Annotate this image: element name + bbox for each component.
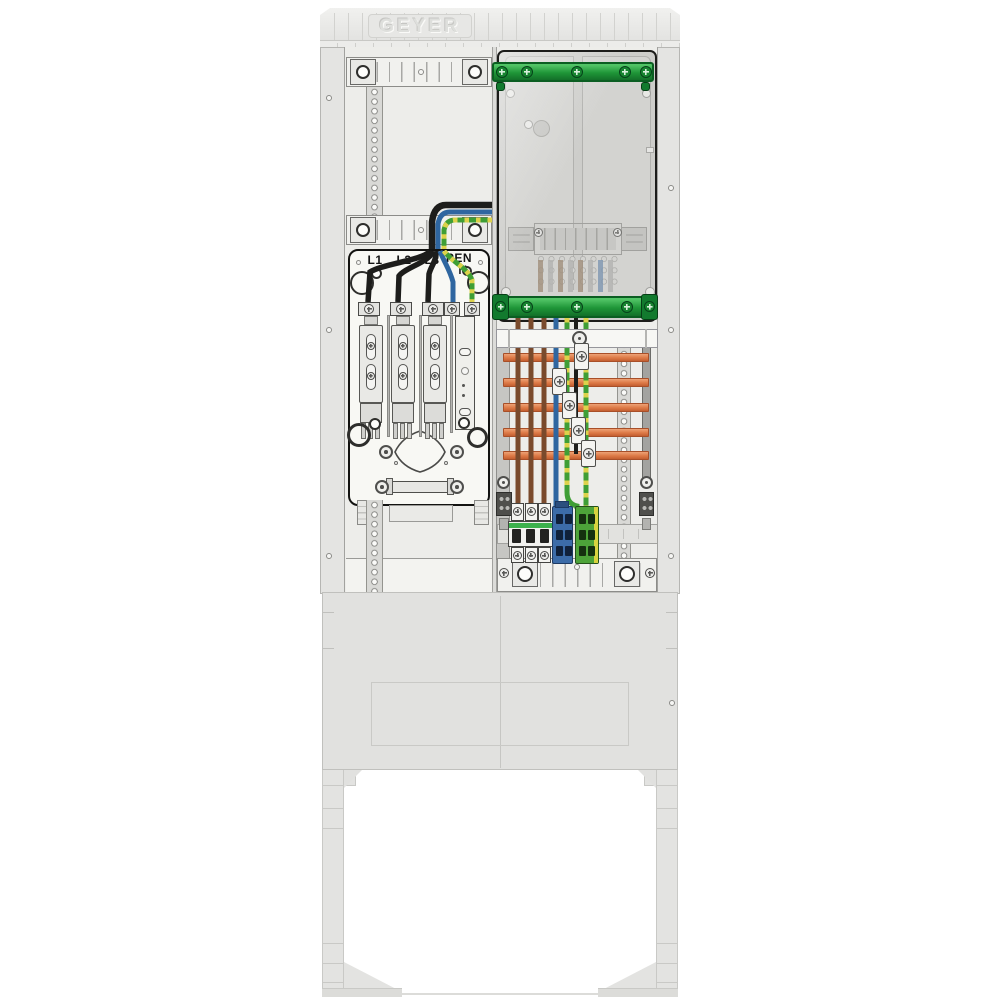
leg-depth-line <box>656 943 678 944</box>
pilot-dot <box>394 461 398 465</box>
guide-pin <box>450 315 453 433</box>
leg-depth-line <box>322 828 344 829</box>
screw-icon <box>571 66 583 78</box>
screw-icon <box>573 425 584 436</box>
comb-dot <box>462 394 465 397</box>
knockout-hole <box>467 427 488 448</box>
rail-end-connector <box>496 492 512 516</box>
screw-icon <box>521 301 533 313</box>
comb-slot <box>459 408 471 416</box>
screw-icon <box>576 351 587 362</box>
screw-icon <box>431 372 439 380</box>
mounting-hole <box>668 185 674 191</box>
screw-icon <box>527 507 536 516</box>
screw-icon <box>431 342 439 350</box>
breaker-toggle-window <box>540 529 549 543</box>
screw-icon <box>447 304 457 314</box>
breaker-toggle-window <box>512 529 521 543</box>
terminal-hole <box>556 514 563 524</box>
neutral-block-tab <box>555 501 569 508</box>
screw-icon <box>513 507 522 516</box>
fuse-contact-prong <box>407 423 412 439</box>
fuse-holder-base <box>392 403 414 423</box>
base-edge-step <box>322 612 334 613</box>
terminal-hole <box>588 546 595 556</box>
transparent-cover <box>499 52 655 320</box>
fixing-screw-icon <box>450 445 464 459</box>
knockout-hole <box>347 423 371 447</box>
screw-icon <box>367 342 375 350</box>
busbar-end-tab <box>641 82 650 91</box>
mounting-hole <box>668 327 674 333</box>
leg-depth-line <box>656 963 678 964</box>
terminal-hole <box>565 546 572 556</box>
clamp-bracket-bar <box>391 481 449 493</box>
bracket-hole-icon <box>468 65 482 79</box>
rail-screw-icon <box>640 476 653 489</box>
leg-depth-line <box>322 943 344 944</box>
guide-pin <box>387 315 390 437</box>
fuse-contact-prong <box>432 423 437 439</box>
screw-icon <box>583 448 594 459</box>
carrier-rail-joint <box>645 329 647 348</box>
terminal-hole <box>588 514 595 524</box>
bracket-hole-icon <box>619 566 635 582</box>
terminal-hole <box>579 546 586 556</box>
spacer-block <box>474 500 489 525</box>
screw-icon <box>521 66 533 78</box>
foundation-foot-base <box>322 988 402 997</box>
leg-depth-line <box>322 982 344 983</box>
leg-depth-line <box>656 828 678 829</box>
fuse-holder-neck <box>428 316 442 325</box>
fuse-holder-neck <box>396 316 410 325</box>
screw-icon <box>513 551 522 560</box>
fixing-screw-icon <box>375 480 389 494</box>
screw-icon <box>540 551 549 560</box>
knockout-hole <box>458 417 470 429</box>
leg-depth-line <box>656 808 678 809</box>
screw-icon <box>364 304 374 314</box>
comb-hole <box>461 367 469 375</box>
carrier-rail-joint <box>508 329 510 348</box>
foundation-leg-left <box>322 770 344 990</box>
screw-icon <box>645 568 655 578</box>
terminal-hole <box>556 530 563 540</box>
fuse-holder-neck <box>364 316 378 325</box>
leg-depth-line <box>322 963 344 964</box>
screw-icon <box>399 372 407 380</box>
terminal-hole <box>556 546 563 556</box>
cable-entry-outline <box>389 505 453 522</box>
perforated-mounting-strip <box>366 500 383 592</box>
foundation-bottom-line <box>402 993 598 995</box>
terminal-hole <box>565 530 572 540</box>
fixing-screw-icon <box>450 480 464 494</box>
busbar-end-tab <box>496 82 505 91</box>
fixing-screw-icon <box>379 445 393 459</box>
terminal-hole <box>579 514 586 524</box>
breaker-toggle-window <box>526 529 535 543</box>
foundation-foot-base <box>598 988 678 997</box>
screw-icon <box>571 301 583 313</box>
incoming-cable-bundle <box>346 192 492 254</box>
guide-pin <box>419 315 422 437</box>
bracket-hole-icon <box>356 65 370 79</box>
screw-icon <box>554 376 565 387</box>
screw-icon <box>619 66 631 78</box>
fuse-contact-prong <box>400 423 405 439</box>
screw-icon <box>564 400 575 411</box>
mounting-hole <box>326 553 332 559</box>
comb-dot <box>462 384 465 387</box>
screw-icon <box>527 551 536 560</box>
rail-end-tab <box>642 518 651 530</box>
brand-logo: GEYER <box>368 14 472 38</box>
rail-center-hole <box>418 69 424 75</box>
base-inner-outline <box>371 682 629 746</box>
screw-icon <box>496 66 508 78</box>
fuse-holder-base <box>424 403 446 423</box>
screw-icon <box>428 304 438 314</box>
screw-icon <box>367 372 375 380</box>
screw-icon <box>467 304 477 314</box>
screw-icon <box>495 301 506 312</box>
knockout-hole <box>369 418 381 430</box>
screw-icon <box>499 568 509 578</box>
base-edge-step <box>666 648 678 649</box>
terminal-hole <box>579 530 586 540</box>
screw-icon <box>396 304 406 314</box>
pilot-dot <box>444 461 448 465</box>
foundation-leg-right <box>656 770 678 990</box>
leg-depth-line <box>322 808 344 809</box>
fuse-contact-prong <box>425 423 430 439</box>
screw-icon <box>540 507 549 516</box>
mounting-hole <box>669 700 675 706</box>
screw-icon <box>399 342 407 350</box>
mounting-hole <box>668 553 674 559</box>
leg-depth-line <box>656 982 678 983</box>
screw-icon <box>644 301 655 312</box>
leg-depth-line <box>322 785 344 786</box>
mounting-hole <box>326 327 332 333</box>
leg-depth-line <box>656 785 678 786</box>
product-illustration-cable-distribution-cabinet: GEYER L1 L2 L3 PEN N <box>0 0 1000 1000</box>
base-edge-step <box>666 612 678 613</box>
screw-icon <box>621 301 633 313</box>
rail-center-hole <box>574 564 580 570</box>
bracket-hole-icon <box>517 566 533 582</box>
screw-icon <box>640 66 652 78</box>
terminal-hole <box>588 530 595 540</box>
mounting-hole <box>326 95 332 101</box>
fuse-contact-prong <box>439 423 444 439</box>
rail-screw-icon <box>497 476 510 489</box>
rail-end-connector <box>639 492 654 516</box>
comb-slot <box>459 348 471 356</box>
fuse-contact-prong <box>393 423 398 439</box>
base-edge-step <box>322 648 334 649</box>
terminal-hole <box>565 514 572 524</box>
